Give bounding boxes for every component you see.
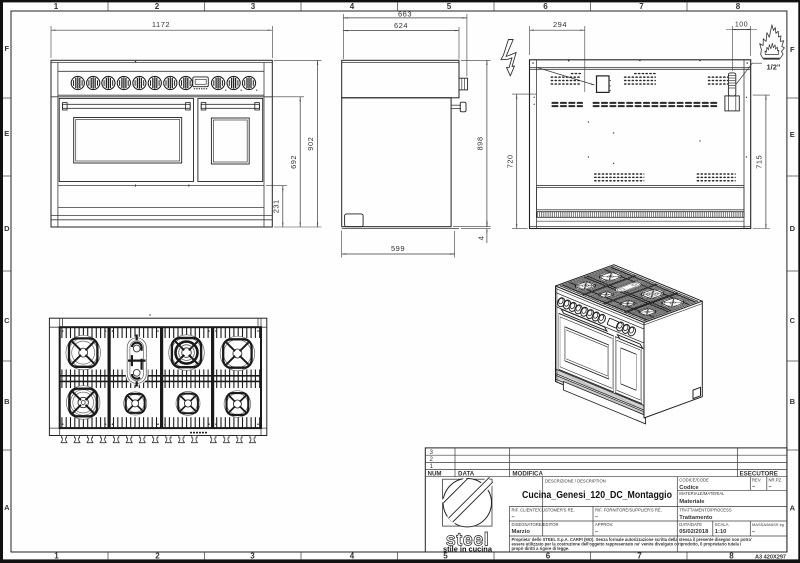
svg-text:–: – xyxy=(595,529,598,535)
svg-text:stile in cucina: stile in cucina xyxy=(443,545,493,554)
svg-text:3: 3 xyxy=(250,552,255,561)
svg-text:TRATTAMENTO/PROCESS: TRATTAMENTO/PROCESS xyxy=(679,507,732,512)
svg-text:DESCRIZIONE / DESCRIPTION: DESCRIZIONE / DESCRIPTION xyxy=(545,478,606,483)
svg-text:NUM: NUM xyxy=(428,470,442,477)
svg-text:NR.PZ.: NR.PZ. xyxy=(769,477,783,482)
svg-text:–: – xyxy=(752,529,755,535)
svg-text:DATA: DATA xyxy=(458,470,475,477)
svg-text:6: 6 xyxy=(543,2,548,11)
svg-text:3: 3 xyxy=(251,2,256,11)
svg-text:–: – xyxy=(595,515,598,521)
svg-text:propri diritti a rigore di leg: propri diritti a rigore di legge. xyxy=(512,546,570,551)
svg-text:624: 624 xyxy=(394,21,408,30)
svg-text:F: F xyxy=(5,44,10,53)
svg-text:100: 100 xyxy=(735,22,748,29)
svg-text:902: 902 xyxy=(306,137,315,151)
svg-text:E: E xyxy=(790,130,795,139)
svg-text:CODICE/CODE: CODICE/CODE xyxy=(679,477,709,482)
svg-text:A: A xyxy=(790,504,796,513)
svg-text:715: 715 xyxy=(755,155,764,169)
svg-text:898: 898 xyxy=(476,136,485,150)
svg-text:B: B xyxy=(4,397,10,406)
svg-text:7: 7 xyxy=(637,552,642,561)
svg-text:DISEGNATORE/EDITOR: DISEGNATORE/EDITOR xyxy=(512,522,559,527)
svg-text:E: E xyxy=(4,129,9,138)
svg-text:MODIFICA: MODIFICA xyxy=(512,470,543,477)
svg-text:–: – xyxy=(769,484,772,490)
svg-text:2: 2 xyxy=(155,552,160,561)
svg-text:05/02/2018: 05/02/2018 xyxy=(679,529,709,535)
svg-text:5: 5 xyxy=(447,2,452,11)
svg-text:692: 692 xyxy=(289,155,298,169)
svg-text:A3 420X297: A3 420X297 xyxy=(755,555,786,561)
svg-text:REV.: REV. xyxy=(752,477,761,482)
svg-text:663: 663 xyxy=(398,9,412,18)
svg-text:SCALA: SCALA xyxy=(715,522,729,527)
svg-text:4: 4 xyxy=(476,236,485,241)
svg-text:C: C xyxy=(4,316,10,325)
svg-text:4: 4 xyxy=(350,2,355,11)
svg-text:599: 599 xyxy=(391,244,405,253)
svg-text:Trattamento: Trattamento xyxy=(679,515,713,521)
svg-text:231: 231 xyxy=(271,199,280,213)
svg-text:4: 4 xyxy=(350,552,355,561)
svg-text:294: 294 xyxy=(553,20,567,29)
svg-text:1/2": 1/2" xyxy=(767,63,781,72)
svg-text:720: 720 xyxy=(505,154,514,168)
svg-text:–: – xyxy=(752,484,755,490)
svg-text:–: – xyxy=(512,515,515,521)
svg-text:C: C xyxy=(790,316,796,325)
svg-text:ESECUTORE: ESECUTORE xyxy=(740,470,778,477)
svg-text:D: D xyxy=(4,224,10,233)
svg-text:A: A xyxy=(4,503,10,512)
svg-text:6: 6 xyxy=(546,552,551,561)
svg-text:2: 2 xyxy=(430,456,434,463)
svg-text:1172: 1172 xyxy=(152,20,170,29)
svg-text:7: 7 xyxy=(639,2,644,11)
svg-text:D: D xyxy=(790,224,796,233)
svg-text:3: 3 xyxy=(430,449,434,456)
svg-text:RIF. FORNITORE/SUPPLIER'S RE.: RIF. FORNITORE/SUPPLIER'S RE. xyxy=(595,507,662,512)
svg-text:B: B xyxy=(790,397,796,406)
svg-text:DATA/DATE: DATA/DATE xyxy=(679,522,702,527)
svg-text:APPROV.: APPROV. xyxy=(595,522,613,527)
svg-text:8: 8 xyxy=(729,552,734,561)
svg-text:F: F xyxy=(790,45,795,54)
svg-text:Cucina_Genesi_120_DC_Montaggio: Cucina_Genesi_120_DC_Montaggio xyxy=(522,489,672,501)
svg-text:MATERIALE/MATERIAL: MATERIALE/MATERIAL xyxy=(679,491,725,496)
svg-text:8: 8 xyxy=(736,2,741,11)
svg-text:1: 1 xyxy=(54,552,59,561)
svg-text:MASSA/MASS kg: MASSA/MASS kg xyxy=(752,522,784,527)
svg-text:1: 1 xyxy=(54,2,59,11)
svg-text:RIF. CLIENTE/CUSTOMER'S RE.: RIF. CLIENTE/CUSTOMER'S RE. xyxy=(512,507,575,512)
svg-text:2: 2 xyxy=(155,2,160,11)
svg-text:1: 1 xyxy=(430,463,434,470)
svg-text:Materiale: Materiale xyxy=(679,499,705,505)
svg-text:Marzio: Marzio xyxy=(512,529,531,535)
svg-text:1:10: 1:10 xyxy=(715,529,727,535)
